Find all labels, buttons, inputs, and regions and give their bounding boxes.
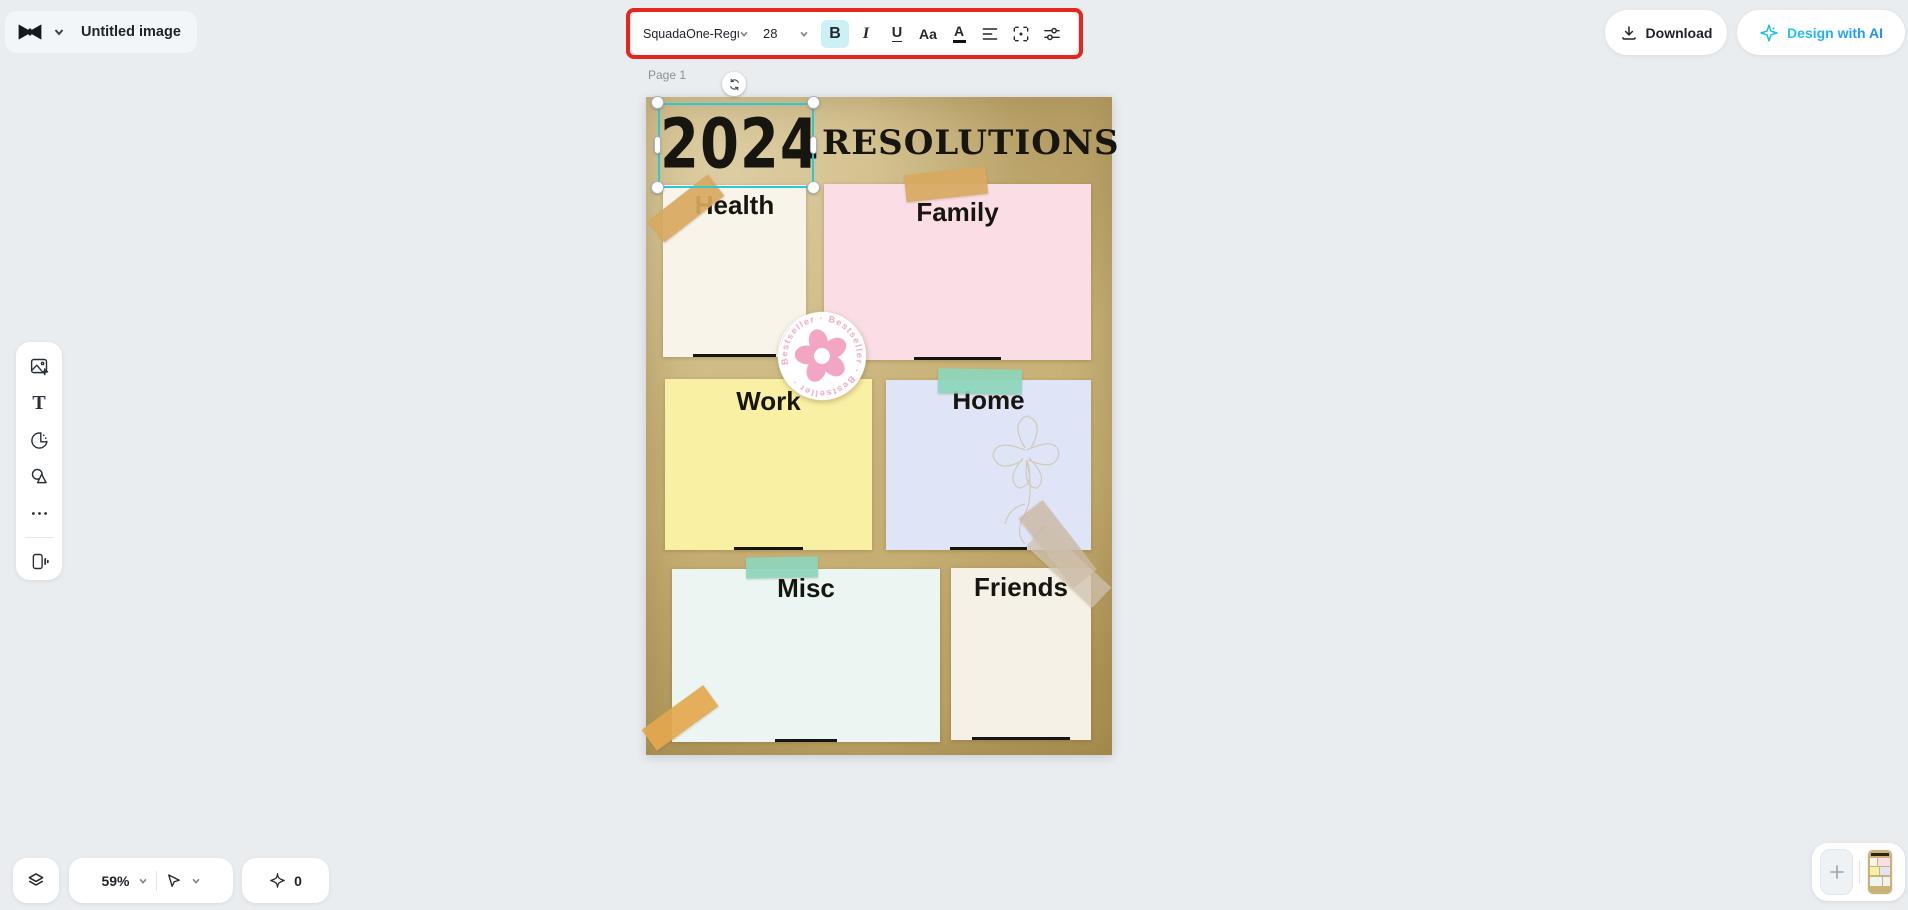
resize-panel-button[interactable] [16, 543, 62, 580]
text-align-button[interactable] [976, 20, 1004, 48]
font-family-value: SquadaOne-Regu [643, 27, 739, 41]
document-menu[interactable]: Untitled image [5, 11, 197, 53]
plus-icon [1829, 864, 1845, 880]
document-title[interactable]: Untitled image [81, 24, 181, 40]
sidebar-divider [25, 537, 53, 538]
stickers-button[interactable] [16, 422, 62, 459]
rotate-icon [728, 78, 741, 91]
text-color-icon: A [953, 25, 966, 43]
design-with-ai-label: Design with AI [1787, 25, 1883, 41]
text-case-icon: Aa [919, 26, 937, 42]
note-friends[interactable]: Friends [951, 568, 1091, 740]
thumbnail-note-block [1870, 877, 1882, 886]
italic-icon: I [863, 25, 869, 43]
thumbnail-note-block [1878, 858, 1890, 866]
credits-count: 0 [294, 873, 302, 889]
pages-panel [1812, 843, 1905, 901]
design-canvas[interactable]: 2024 RESOLUTIONS Health Family Work Home… [646, 97, 1112, 755]
note-friends-label[interactable]: Friends [972, 573, 1070, 740]
chevron-down-icon [739, 29, 749, 39]
rotate-handle[interactable] [722, 72, 746, 96]
note-misc[interactable]: Misc [672, 569, 940, 742]
ellipsis-icon [29, 503, 50, 524]
thumbnail-note-block [1870, 858, 1877, 866]
selection-handle-left[interactable] [654, 136, 661, 154]
zoom-level-value[interactable]: 59% [101, 873, 129, 889]
selection-handle-top-right[interactable] [807, 96, 820, 109]
text-format-toolbar: SquadaOne-Regu 28 B I U Aa A [631, 12, 1078, 55]
page-label: Page 1 [648, 68, 686, 82]
selection-handle-top-left[interactable] [651, 96, 664, 109]
more-tools-button[interactable] [16, 495, 62, 532]
shapes-icon [29, 466, 50, 487]
layers-icon [26, 871, 46, 891]
thumbnail-note-block [1880, 867, 1890, 875]
selection-box[interactable] [658, 103, 814, 188]
chevron-down-icon[interactable] [191, 876, 201, 886]
font-size-value: 28 [763, 26, 777, 41]
adjust-settings-button[interactable] [1038, 20, 1066, 48]
format-buttons: B I U Aa A [821, 20, 1066, 48]
layers-button[interactable] [13, 858, 59, 903]
italic-button[interactable]: I [852, 20, 880, 48]
credits-button[interactable]: 0 [242, 858, 329, 903]
image-add-icon [29, 356, 50, 377]
design-with-ai-button[interactable]: Design with AI [1737, 10, 1905, 55]
note-health-label[interactable]: Health [693, 191, 776, 357]
capcut-logo-icon [17, 21, 43, 43]
add-image-button[interactable] [16, 348, 62, 385]
chevron-down-icon [799, 29, 809, 39]
cursor-mode-icon[interactable] [165, 872, 183, 890]
sliders-icon [1042, 24, 1062, 44]
shapes-button[interactable] [16, 458, 62, 495]
note-work[interactable]: Work [665, 379, 872, 550]
selection-handle-bottom-right[interactable] [807, 181, 820, 194]
ai-compass-icon [1759, 23, 1779, 43]
sparkle-icon [269, 872, 286, 889]
text-case-button[interactable]: Aa [914, 20, 942, 48]
selection-handle-right[interactable] [810, 136, 817, 154]
tape-misc-top[interactable] [746, 556, 818, 578]
font-size-select[interactable]: 28 [763, 26, 809, 41]
selection-handle-bottom-left[interactable] [651, 181, 664, 194]
chevron-down-icon[interactable] [138, 876, 148, 886]
download-label: Download [1646, 25, 1713, 41]
download-button[interactable]: Download [1605, 10, 1727, 55]
align-icon [980, 24, 1000, 44]
pill-divider [156, 871, 157, 891]
text-color-button[interactable]: A [945, 20, 973, 48]
thumbnail-note-block [1871, 853, 1889, 856]
side-toolbar: T [16, 342, 62, 580]
thumbnail-note-block [1883, 877, 1890, 886]
thumbnail-note-block [1870, 867, 1879, 875]
add-text-button[interactable]: T [16, 385, 62, 422]
canvas-resize-icon [29, 551, 50, 572]
note-family-label[interactable]: Family [914, 198, 1000, 360]
bold-icon: B [829, 25, 841, 43]
underline-button[interactable]: U [883, 20, 911, 48]
title-resolutions-text[interactable]: RESOLUTIONS [822, 123, 1084, 163]
download-icon [1620, 24, 1638, 42]
sticker-icon [29, 430, 50, 451]
page-thumbnail[interactable] [1868, 850, 1892, 894]
font-family-select[interactable]: SquadaOne-Regu [643, 27, 749, 41]
underline-icon: U [892, 26, 902, 42]
add-page-button[interactable] [1820, 849, 1853, 895]
tape-home-top[interactable] [938, 368, 1022, 394]
focus-frame-icon [1011, 24, 1031, 44]
note-misc-label[interactable]: Misc [775, 574, 837, 742]
bold-button[interactable]: B [821, 20, 849, 48]
pages-divider [1859, 860, 1860, 884]
zoom-preview-控制: 59% [69, 858, 233, 903]
chevron-down-icon[interactable] [53, 26, 65, 38]
select-frame-button[interactable] [1007, 20, 1035, 48]
text-tool-icon: T [32, 393, 45, 413]
